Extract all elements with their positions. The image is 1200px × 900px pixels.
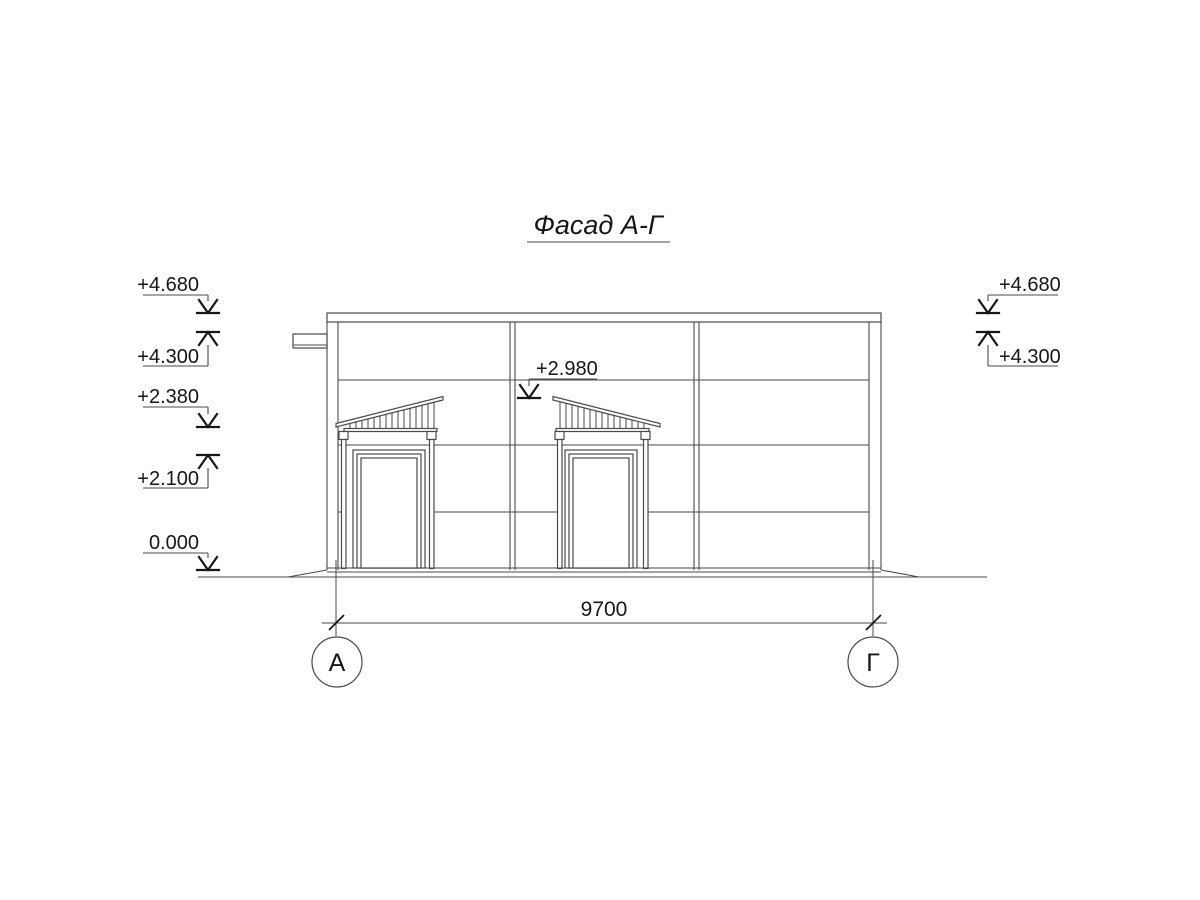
door-leaf [573,458,629,568]
elevation-value: 0.000 [149,532,199,554]
elevation-mark-left-2380: +2.380 [137,386,219,427]
drawing-title: Фасад А-Г [533,210,664,240]
level-arrow-down-icon [197,414,219,427]
right-door [565,450,637,568]
elevation-mark-left-0000: 0.000 [143,532,219,570]
canopy-post-cap [427,432,436,440]
elevation-mark-right-4300: +4.300 [977,332,1061,368]
canopy-bottom-bar [344,429,437,432]
axis-label-a: А [329,649,346,677]
level-arrow-down-icon [518,385,540,398]
elevation-value: +2.100 [137,468,199,490]
canopy-slope-beam [553,397,660,428]
drawing-sheet: Фасад А-Г [0,0,1200,900]
level-arrow-up-icon [197,332,219,345]
elevation-value: +2.980 [536,358,598,380]
elevation-value: +4.680 [999,274,1061,296]
canopy-post [342,440,347,569]
canopy-post [558,440,563,569]
elevation-mark-canopy-2980: +2.980 [518,358,598,398]
level-arrow-down-icon [977,300,999,313]
elevation-mark-left-4300: +4.300 [137,332,219,368]
level-arrow-up-icon [197,455,219,468]
elevation-mark-right-4680: +4.680 [977,274,1061,313]
parapet [327,313,881,322]
level-arrow-up-icon [977,332,999,345]
dimension-value: 9700 [581,598,628,621]
elevation-value: +4.680 [137,274,199,296]
level-arrow-down-icon [197,557,219,570]
facade-elevation-drawing: Фасад А-Г [0,0,1200,900]
canopy-post [430,440,435,569]
canopy-hatching [560,402,644,429]
canopy-post-cap [641,432,650,440]
level-arrow-down-icon [197,300,219,313]
elevation-value: +4.300 [137,346,199,368]
elevation-mark-left-4680: +4.680 [137,274,219,313]
left-ramp-line [288,570,327,577]
elevation-value: +4.300 [999,346,1061,368]
canopy-bottom-bar [556,429,649,432]
dimension-and-axes: 9700 А Г [312,560,898,687]
elevation-mark-left-2100: +2.100 [137,455,219,490]
axis-label-g: Г [866,649,880,677]
door-leaf [361,458,417,568]
canopy-post [644,440,649,569]
canopy-hatching [350,402,434,428]
left-door [353,450,425,568]
elevation-value: +2.380 [137,386,199,408]
canopy-slope-beam [336,397,443,428]
roof-overhang [293,334,327,348]
canopy-post-cap [339,432,348,440]
drawing-title-block: Фасад А-Г [527,210,670,242]
right-ramp-line [881,570,919,577]
canopy-post-cap [555,432,564,440]
